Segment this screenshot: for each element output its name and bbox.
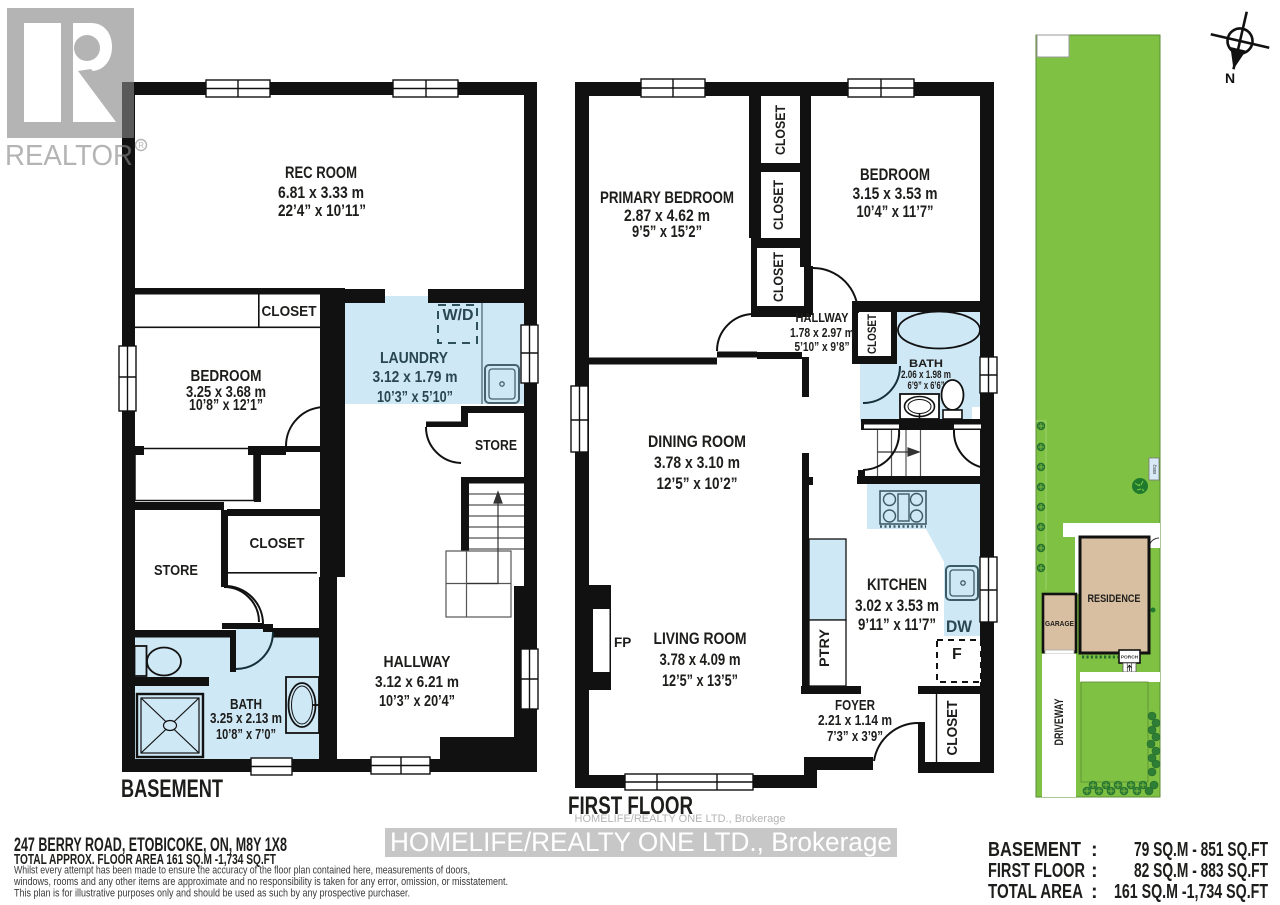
svg-text:3.78 x 3.10 m: 3.78 x 3.10 m	[654, 454, 740, 472]
svg-text:KITCHEN: KITCHEN	[867, 576, 927, 594]
svg-text:2.21 x 1.14 m: 2.21 x 1.14 m	[818, 712, 892, 729]
svg-text:TOTAL AREA: TOTAL AREA	[988, 881, 1083, 903]
svg-text:CLOSET: CLOSET	[865, 313, 879, 354]
svg-text:5’10” x 9’8”: 5’10” x 9’8”	[795, 340, 850, 354]
svg-text:6.81 x 3.33 m: 6.81 x 3.33 m	[278, 183, 364, 202]
svg-text:This plan is for illustrative: This plan is for illustrative purposes o…	[14, 888, 410, 900]
svg-text:R: R	[138, 141, 144, 150]
svg-text:HOMELIFE/REALTY ONE LTD., Brok: HOMELIFE/REALTY ONE LTD., Brokerage	[390, 827, 892, 857]
svg-text:10’3” x 5’10”: 10’3” x 5’10”	[377, 389, 453, 406]
svg-text:DW: DW	[946, 618, 972, 636]
svg-text:BASEMENT: BASEMENT	[121, 775, 223, 803]
svg-text:10’8” x 12’1”: 10’8” x 12’1”	[189, 397, 263, 414]
svg-text:BEDROOM: BEDROOM	[860, 166, 930, 184]
svg-text:W/D: W/D	[443, 307, 474, 324]
svg-text:LIVING ROOM: LIVING ROOM	[654, 630, 747, 648]
svg-text:CLOSET: CLOSET	[771, 251, 786, 302]
svg-text:3.15 x 3.53 m: 3.15 x 3.53 m	[853, 185, 938, 203]
svg-text:CLOSET: CLOSET	[945, 700, 961, 755]
svg-text:3.12 x 1.79 m: 3.12 x 1.79 m	[373, 369, 458, 386]
svg-text::: :	[1091, 860, 1098, 882]
svg-text:CLOSET: CLOSET	[250, 535, 305, 552]
svg-text:3.25 x 2.13 m: 3.25 x 2.13 m	[210, 710, 282, 727]
svg-text:LAUNDRY: LAUNDRY	[380, 350, 449, 367]
svg-text:82 SQ.M - 883 SQ.FT: 82 SQ.M - 883 SQ.FT	[1134, 860, 1268, 882]
svg-text:6’9” x 6’6”: 6’9” x 6’6”	[908, 380, 945, 392]
svg-text:Whilst every attempt has been: Whilst every attempt has been made to en…	[14, 865, 470, 877]
svg-text:PORCH: PORCH	[1121, 655, 1139, 661]
svg-text:CLOSET: CLOSET	[771, 179, 786, 230]
svg-text:REALTOR: REALTOR	[5, 140, 133, 172]
svg-text:10’8” x 7’0”: 10’8” x 7’0”	[216, 726, 276, 743]
svg-text:REC ROOM: REC ROOM	[285, 163, 357, 182]
svg-text:windows, rooms and any other i: windows, rooms and any other items are a…	[13, 876, 508, 888]
svg-text:PRIMARY BEDROOM: PRIMARY BEDROOM	[600, 189, 734, 207]
svg-text:1.78 x 2.97 m: 1.78 x 2.97 m	[790, 326, 854, 340]
svg-text:10’4” x 11’7”: 10’4” x 11’7”	[857, 203, 934, 221]
svg-text:RESIDENCE: RESIDENCE	[1088, 593, 1141, 605]
svg-text:3.12 x 6.21 m: 3.12 x 6.21 m	[375, 674, 459, 691]
svg-text:CLOSET: CLOSET	[773, 104, 788, 155]
svg-text:DINING ROOM: DINING ROOM	[648, 433, 746, 451]
svg-text:BASEMENT: BASEMENT	[988, 839, 1081, 861]
svg-text:FP: FP	[614, 635, 631, 650]
svg-text:12’5” x 13’5”: 12’5” x 13’5”	[662, 672, 738, 690]
svg-text:BBQ: BBQ	[1152, 464, 1157, 474]
svg-text:HALLWAY: HALLWAY	[796, 311, 850, 325]
svg-text:9’5” x 15’2”: 9’5” x 15’2”	[632, 223, 702, 241]
svg-text:DRIVEWAY: DRIVEWAY	[1054, 698, 1066, 745]
svg-text:BEDROOM: BEDROOM	[191, 368, 262, 385]
svg-text:12’5” x 10’2”: 12’5” x 10’2”	[657, 475, 738, 493]
svg-text:10’3” x 20’4”: 10’3” x 20’4”	[379, 693, 455, 710]
svg-text:HALLWAY: HALLWAY	[384, 654, 451, 671]
svg-text:3.78 x 4.09 m: 3.78 x 4.09 m	[660, 651, 741, 669]
svg-text:PTRY: PTRY	[817, 629, 832, 667]
svg-text:3.02 x 3.53 m: 3.02 x 3.53 m	[855, 597, 939, 615]
svg-text::: :	[1091, 839, 1098, 861]
svg-text:22’4” x 10’11”: 22’4” x 10’11”	[278, 201, 366, 220]
svg-text:161 SQ.M -1,734 SQ.FT: 161 SQ.M -1,734 SQ.FT	[1114, 881, 1268, 903]
svg-text:GARAGE: GARAGE	[1045, 619, 1074, 628]
svg-text:HOMELIFE/REALTY ONE LTD., Brok: HOMELIFE/REALTY ONE LTD., Brokerage	[575, 813, 786, 825]
svg-text:FIRST FLOOR: FIRST FLOOR	[988, 860, 1085, 882]
svg-text:7’3” x 3’9”: 7’3” x 3’9”	[827, 728, 883, 745]
svg-text:CLOSET: CLOSET	[262, 303, 317, 320]
svg-text:N: N	[1225, 70, 1235, 86]
svg-text::: :	[1091, 881, 1098, 903]
svg-text:F: F	[952, 646, 962, 663]
svg-text:79 SQ.M - 851 SQ.FT: 79 SQ.M - 851 SQ.FT	[1134, 839, 1268, 861]
svg-text:STORE: STORE	[475, 438, 517, 454]
svg-text:9’11” x 11’7”: 9’11” x 11’7”	[858, 616, 936, 634]
svg-text:STORE: STORE	[154, 563, 198, 579]
